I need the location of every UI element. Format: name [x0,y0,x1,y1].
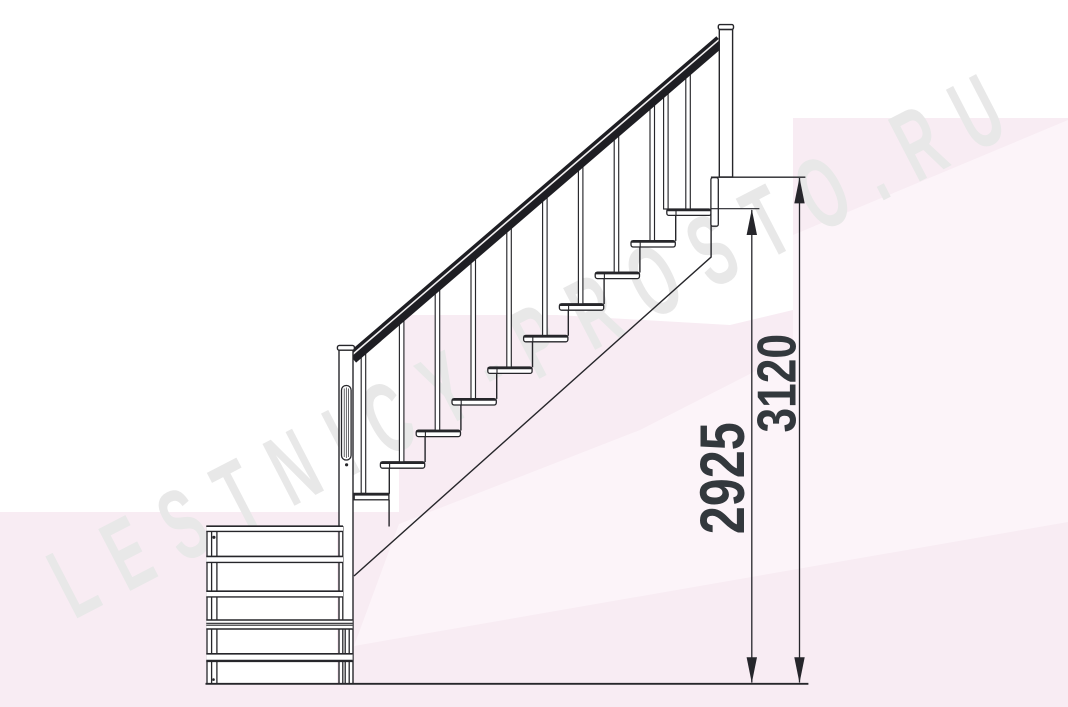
svg-text:3120: 3120 [746,334,807,433]
svg-text:2925: 2925 [688,422,758,534]
